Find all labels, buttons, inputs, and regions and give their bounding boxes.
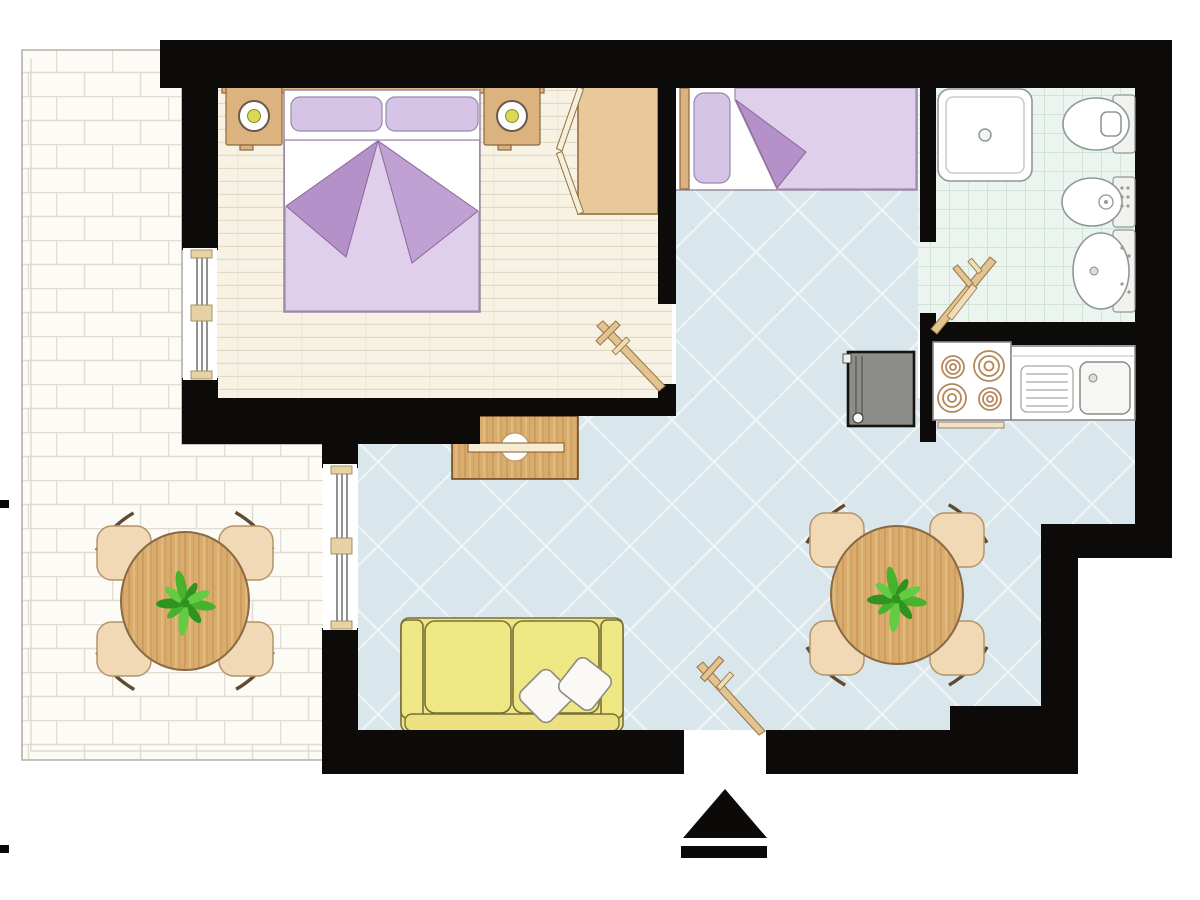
arrow-bar: [681, 846, 767, 858]
toilet-flush: [1101, 112, 1121, 136]
bedroom-window: [183, 248, 217, 380]
sofa-armrest: [401, 620, 423, 718]
wall-bedroom-right: [658, 40, 676, 304]
tick-mark: [0, 845, 9, 853]
bed-pillow: [291, 97, 382, 131]
wall-right-upper: [1135, 40, 1172, 558]
floor-plan-image: [0, 0, 1200, 900]
wall-bottom-right: [766, 730, 1052, 774]
wall-bedroom-left-upper: [182, 42, 218, 250]
wall-bedroom-bottom-thin: [460, 398, 676, 416]
sofa-armrest: [601, 620, 623, 718]
stove: [933, 342, 1011, 428]
bed-pillow: [694, 93, 730, 183]
bedroom: [196, 80, 672, 404]
sofa: [401, 618, 623, 732]
single-bed-headboard: [680, 88, 689, 189]
bidet: [1062, 177, 1135, 227]
wall-bathroom-left-upper: [920, 40, 936, 242]
double-bed: [284, 90, 480, 312]
kitchen-sink: [1080, 362, 1130, 414]
wall-living-left-upper: [322, 398, 358, 468]
oven-handle: [938, 422, 1004, 428]
sofa-cushion: [425, 621, 511, 713]
bed-pillow: [386, 97, 478, 131]
floor-plan-canvas: [0, 0, 1200, 900]
shower: [938, 89, 1032, 181]
wall-living-left-lower: [322, 628, 358, 774]
sofa-backrest: [405, 714, 619, 731]
kitchen: [843, 342, 1135, 428]
appliance: [843, 352, 914, 426]
washbasin: [1073, 230, 1135, 312]
nightstand-right: [484, 87, 540, 150]
single-bed: [675, 87, 917, 190]
wall-bottom-left: [322, 730, 684, 774]
nightstand-left: [226, 87, 282, 150]
living-window: [323, 464, 357, 630]
tick-mark: [0, 500, 9, 508]
kitchen-counter: [1011, 346, 1135, 420]
